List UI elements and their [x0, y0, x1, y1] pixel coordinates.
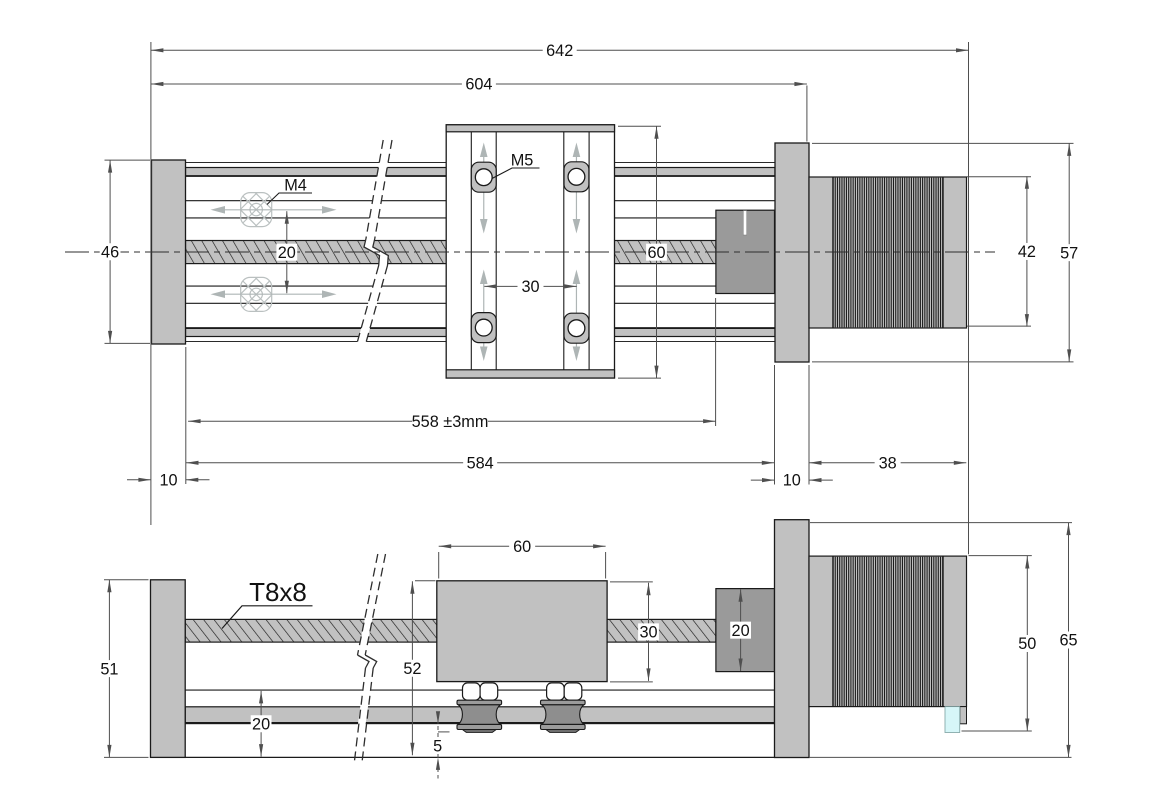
svg-text:46: 46: [101, 243, 119, 261]
svg-text:60: 60: [647, 244, 665, 262]
svg-text:T8x8: T8x8: [249, 577, 307, 607]
svg-text:558 ±3mm: 558 ±3mm: [412, 413, 489, 431]
svg-text:20: 20: [278, 244, 296, 262]
svg-text:38: 38: [879, 455, 897, 473]
svg-text:604: 604: [465, 76, 492, 94]
svg-text:642: 642: [546, 42, 573, 60]
svg-text:51: 51: [100, 660, 118, 678]
svg-text:10: 10: [159, 471, 177, 489]
svg-text:57: 57: [1060, 244, 1078, 262]
svg-text:30: 30: [639, 624, 657, 642]
svg-text:30: 30: [521, 278, 539, 296]
svg-text:M5: M5: [511, 152, 534, 170]
svg-text:584: 584: [467, 455, 494, 473]
svg-text:M4: M4: [284, 177, 307, 195]
svg-text:52: 52: [403, 660, 421, 678]
svg-text:65: 65: [1059, 632, 1077, 650]
svg-text:42: 42: [1018, 243, 1036, 261]
svg-text:5: 5: [433, 737, 442, 755]
svg-text:20: 20: [732, 622, 750, 640]
svg-text:20: 20: [252, 715, 270, 733]
svg-text:50: 50: [1018, 635, 1036, 653]
svg-text:10: 10: [783, 472, 801, 490]
svg-text:60: 60: [513, 538, 531, 556]
